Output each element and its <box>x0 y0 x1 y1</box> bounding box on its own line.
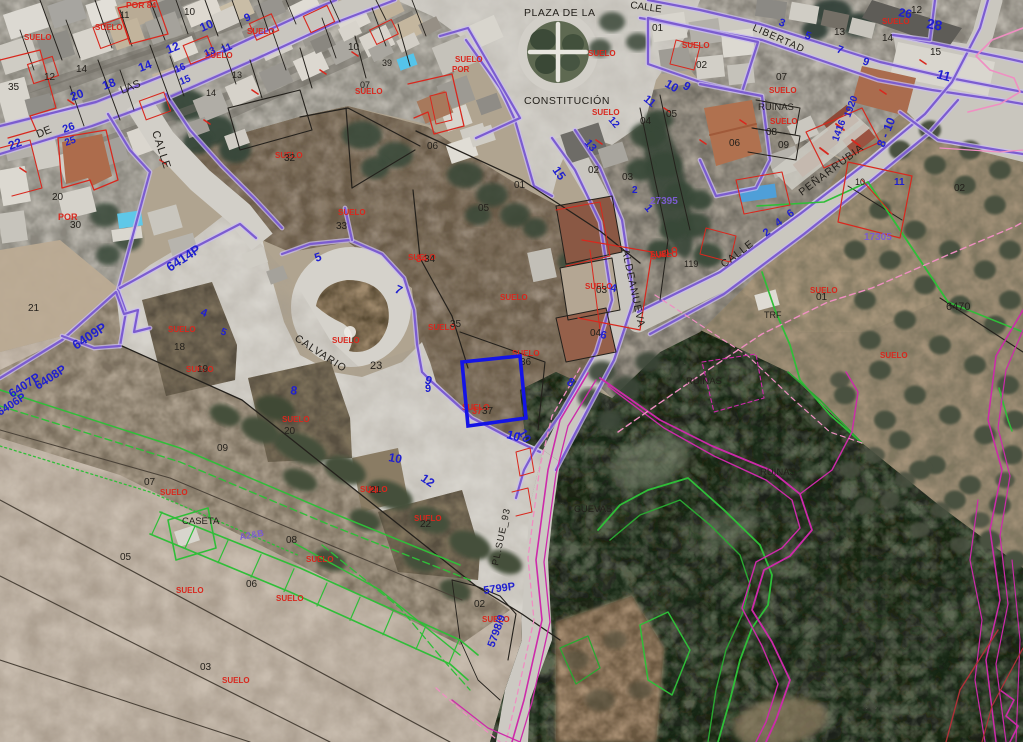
svg-text:SUELO: SUELO <box>455 55 483 64</box>
svg-text:SUELO: SUELO <box>24 33 52 42</box>
svg-text:SUELO: SUELO <box>770 117 798 126</box>
svg-text:11: 11 <box>120 10 129 20</box>
svg-text:SUELO: SUELO <box>276 594 304 603</box>
svg-text:13: 13 <box>834 27 846 38</box>
svg-text:02: 02 <box>588 165 600 176</box>
svg-text:14: 14 <box>882 33 894 44</box>
svg-text:11: 11 <box>894 177 905 188</box>
svg-text:07: 07 <box>776 72 788 83</box>
svg-text:SUELO: SUELO <box>168 325 196 334</box>
svg-text:35: 35 <box>8 82 20 93</box>
svg-text:37: 37 <box>472 406 482 416</box>
svg-text:22: 22 <box>420 519 432 530</box>
svg-text:33: 33 <box>336 221 348 232</box>
svg-text:12: 12 <box>44 72 56 83</box>
svg-text:02: 02 <box>696 60 708 71</box>
svg-text:RUINAS: RUINAS <box>760 467 796 478</box>
svg-text:SUELO: SUELO <box>160 488 188 497</box>
svg-text:34: 34 <box>424 254 436 265</box>
svg-text:SUELO: SUELO <box>176 586 204 595</box>
svg-text:03: 03 <box>622 172 634 183</box>
svg-text:39: 39 <box>382 58 392 68</box>
svg-text:18: 18 <box>174 342 186 353</box>
svg-text:RUINAS: RUINAS <box>686 376 722 387</box>
svg-text:02: 02 <box>954 183 966 194</box>
svg-text:13: 13 <box>232 70 242 80</box>
svg-text:CUEVAS: CUEVAS <box>574 504 612 515</box>
svg-text:15: 15 <box>930 47 942 58</box>
svg-text:06: 06 <box>246 579 258 590</box>
svg-text:14: 14 <box>76 64 88 75</box>
svg-text:POR 84: POR 84 <box>126 0 157 10</box>
svg-text:RUINAS: RUINAS <box>758 102 794 113</box>
svg-text:28: 28 <box>925 15 943 33</box>
svg-text:23: 23 <box>370 360 382 372</box>
svg-text:27395: 27395 <box>650 196 678 207</box>
svg-text:CASETA: CASETA <box>182 516 220 527</box>
svg-text:SUELO: SUELO <box>306 555 334 564</box>
svg-text:30: 30 <box>70 220 82 231</box>
svg-text:02: 02 <box>474 599 486 610</box>
svg-text:05: 05 <box>478 203 490 214</box>
svg-text:CONSTITUCIÓN: CONSTITUCIÓN <box>524 94 610 107</box>
svg-text:07: 07 <box>144 477 156 488</box>
svg-text:SUELO: SUELO <box>247 27 275 36</box>
svg-text:POR: POR <box>452 65 470 74</box>
svg-text:26: 26 <box>897 5 913 21</box>
svg-text:35: 35 <box>450 319 462 330</box>
svg-text:01: 01 <box>652 23 664 34</box>
svg-text:07: 07 <box>360 80 370 90</box>
svg-text:SUELO: SUELO <box>338 208 366 217</box>
svg-text:20: 20 <box>52 192 64 203</box>
svg-text:SUELO: SUELO <box>500 293 528 302</box>
svg-text:21: 21 <box>28 303 40 314</box>
svg-text:01: 01 <box>816 292 828 303</box>
svg-text:PLAZA DE LA: PLAZA DE LA <box>524 7 595 19</box>
svg-text:6470: 6470 <box>946 301 970 313</box>
svg-text:SUELO: SUELO <box>222 676 250 685</box>
svg-text:06: 06 <box>729 138 741 149</box>
svg-text:05: 05 <box>120 552 132 563</box>
svg-text:08: 08 <box>286 535 298 546</box>
svg-text:08: 08 <box>766 127 778 138</box>
svg-text:TRF: TRF <box>764 310 782 320</box>
svg-text:04: 04 <box>640 116 652 127</box>
svg-text:SUELO: SUELO <box>332 336 360 345</box>
svg-text:2: 2 <box>632 185 638 196</box>
svg-text:10: 10 <box>184 7 196 18</box>
svg-text:06: 06 <box>427 141 439 152</box>
svg-text:SUELO: SUELO <box>769 86 797 95</box>
svg-text:09: 09 <box>217 443 229 454</box>
svg-text:09: 09 <box>778 140 790 151</box>
svg-text:03: 03 <box>596 285 608 296</box>
svg-text:19: 19 <box>197 364 209 375</box>
svg-text:SUELO: SUELO <box>682 41 710 50</box>
svg-text:SUELO: SUELO <box>588 49 616 58</box>
svg-text:SUELO: SUELO <box>282 415 310 424</box>
svg-text:SUELO: SUELO <box>95 23 123 32</box>
svg-text:119: 119 <box>684 259 698 269</box>
svg-text:9: 9 <box>425 383 431 395</box>
svg-text:10: 10 <box>348 42 360 53</box>
svg-text:10: 10 <box>387 450 403 466</box>
svg-text:17305: 17305 <box>864 232 892 243</box>
svg-text:SUELO: SUELO <box>880 351 908 360</box>
svg-text:21: 21 <box>370 485 382 496</box>
svg-text:03: 03 <box>200 662 212 673</box>
svg-text:10: 10 <box>855 177 865 187</box>
svg-text:20: 20 <box>284 426 296 437</box>
svg-text:32: 32 <box>284 153 296 164</box>
svg-text:37: 37 <box>482 406 494 417</box>
svg-text:05: 05 <box>666 109 678 120</box>
svg-text:14: 14 <box>206 88 216 98</box>
svg-text:01: 01 <box>514 180 526 191</box>
